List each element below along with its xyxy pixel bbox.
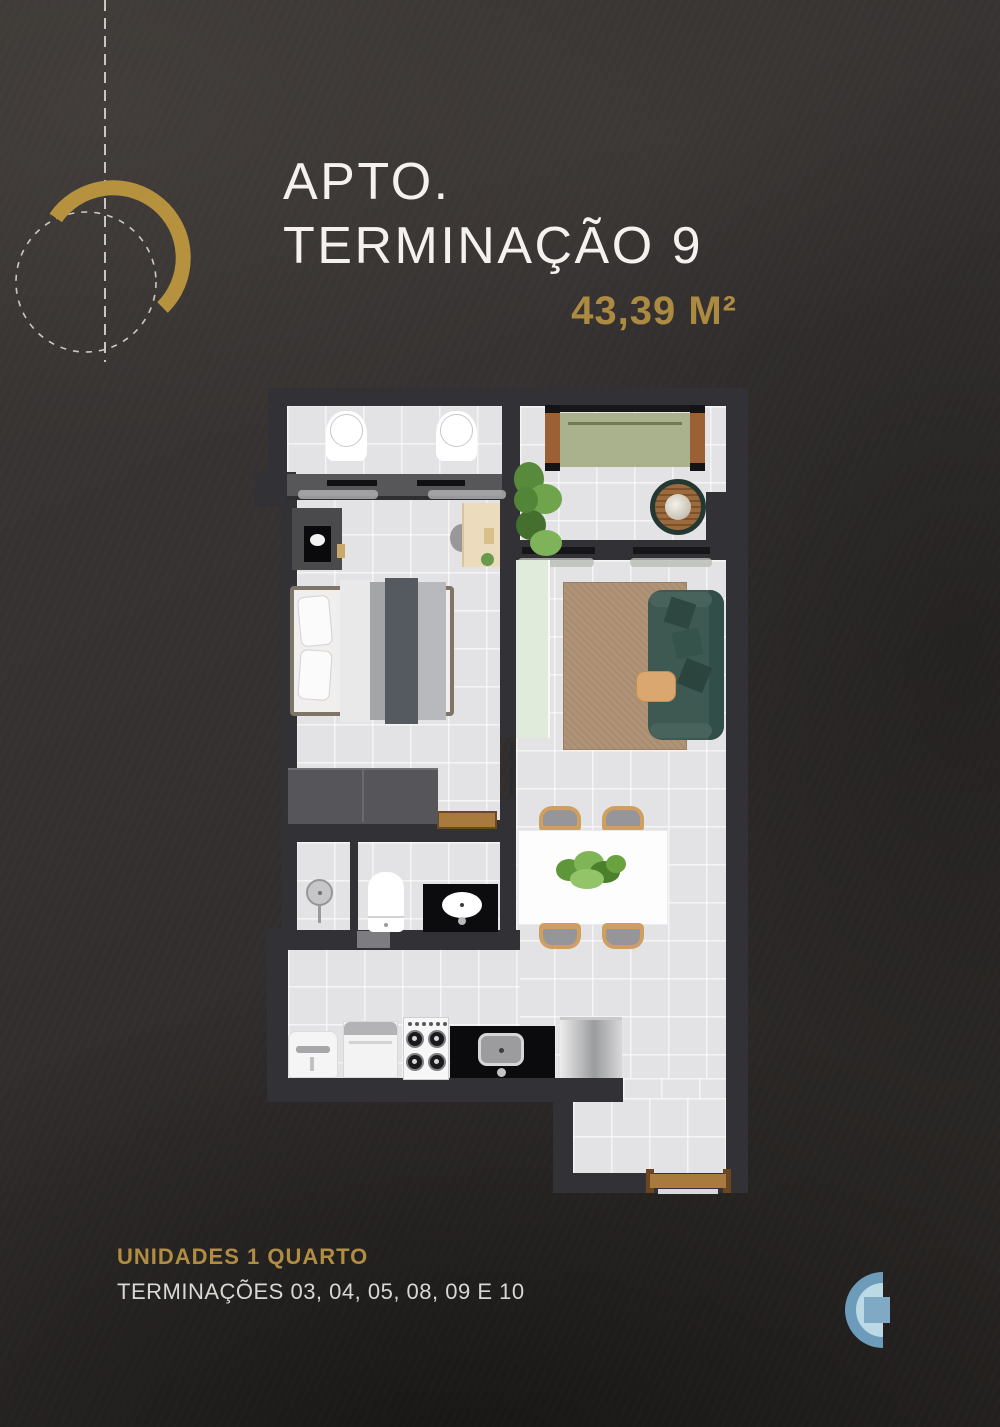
bed-sheet xyxy=(340,580,372,722)
window-icon xyxy=(417,480,465,486)
door-leaf xyxy=(510,742,514,796)
window-icon xyxy=(327,480,377,486)
dining-chair xyxy=(539,806,581,832)
toilet xyxy=(368,872,404,932)
desk xyxy=(462,503,500,567)
kitchen-sink xyxy=(478,1033,524,1066)
throw-pillow xyxy=(677,658,712,693)
door-opening xyxy=(357,931,390,948)
wall-segment xyxy=(267,930,520,950)
burner xyxy=(428,1030,446,1048)
footer-units-label: UNIDADES 1 QUARTO xyxy=(117,1244,525,1270)
leaf xyxy=(514,487,538,513)
shelf-item xyxy=(337,544,345,558)
shower-stem xyxy=(318,905,321,923)
drain xyxy=(499,1048,504,1053)
wall-segment xyxy=(268,388,287,480)
footer: UNIDADES 1 QUARTO TERMINAÇÕES 03, 04, 05… xyxy=(117,1244,525,1305)
sofa xyxy=(648,590,724,740)
table-center xyxy=(665,494,691,520)
shower-head xyxy=(306,879,333,906)
desk-item xyxy=(484,528,494,544)
tub-stem xyxy=(310,1057,314,1071)
laundry-tub xyxy=(288,1031,338,1078)
side-table xyxy=(636,671,676,702)
sofa-backrest xyxy=(709,590,724,740)
bed-blanket xyxy=(418,582,446,720)
dining-chair xyxy=(602,806,644,832)
curtain xyxy=(298,490,378,499)
bed-runner xyxy=(385,578,418,724)
floor-plan xyxy=(0,0,1000,1427)
refrigerator xyxy=(560,1017,622,1078)
washing-machine xyxy=(343,1021,398,1078)
centerpiece-plant xyxy=(556,851,628,891)
garden-bench-cushion xyxy=(560,413,690,467)
faucet xyxy=(497,1068,506,1077)
lounge-chair xyxy=(326,411,367,461)
sink xyxy=(442,892,482,918)
kitchen-counter xyxy=(450,1026,555,1078)
entry-door-threshold xyxy=(650,1174,726,1188)
curtain xyxy=(630,558,712,567)
gas-stove xyxy=(403,1017,449,1080)
tub-bar xyxy=(296,1046,330,1053)
faucet xyxy=(458,917,466,925)
cushion-seam xyxy=(568,422,682,425)
bench-arm xyxy=(690,405,705,471)
round-side-table xyxy=(650,479,706,535)
shower-partition xyxy=(350,842,358,932)
bathroom-door xyxy=(437,811,497,829)
curtain xyxy=(428,490,506,499)
burner xyxy=(428,1053,446,1071)
seat-ring xyxy=(440,414,473,447)
sliding-door-icon xyxy=(633,547,710,554)
dining-chair xyxy=(602,923,644,949)
television xyxy=(304,526,331,562)
desk-plant xyxy=(481,553,494,566)
pillow xyxy=(297,595,333,648)
seat-ring xyxy=(330,414,363,447)
leaf xyxy=(530,530,562,556)
burner xyxy=(406,1053,424,1071)
throw-pillow xyxy=(671,627,703,659)
wardrobe xyxy=(288,768,438,824)
sofa-arm xyxy=(650,723,712,738)
lounge-chair xyxy=(436,411,477,461)
flush-button xyxy=(384,923,388,927)
tv-graphic xyxy=(310,534,325,546)
wall-segment xyxy=(267,928,288,1100)
dining-chair xyxy=(539,923,581,949)
footer-terminations-label: TERMINAÇÕES 03, 04, 05, 08, 09 E 10 xyxy=(117,1279,525,1305)
floor-entry xyxy=(573,1098,726,1175)
bench-rail xyxy=(545,405,705,412)
potted-plant xyxy=(514,462,566,558)
poster: APTO. TERMINAÇÃO 9 43,39 M² xyxy=(0,0,1000,1427)
sideboard xyxy=(516,560,550,738)
drain xyxy=(460,903,464,907)
leaf xyxy=(606,855,626,873)
leaf xyxy=(570,869,604,889)
pillow xyxy=(297,649,332,701)
washer-line xyxy=(349,1041,392,1044)
shower-dot xyxy=(318,891,322,895)
bed-blanket xyxy=(370,582,386,720)
door-sill xyxy=(658,1189,718,1194)
wall-segment xyxy=(500,800,516,950)
c-monogram-logo-icon xyxy=(845,1272,895,1348)
bathroom-vanity xyxy=(423,884,498,932)
washer-lid xyxy=(344,1022,397,1035)
wardrobe-divider xyxy=(362,770,364,822)
burner xyxy=(406,1030,424,1048)
